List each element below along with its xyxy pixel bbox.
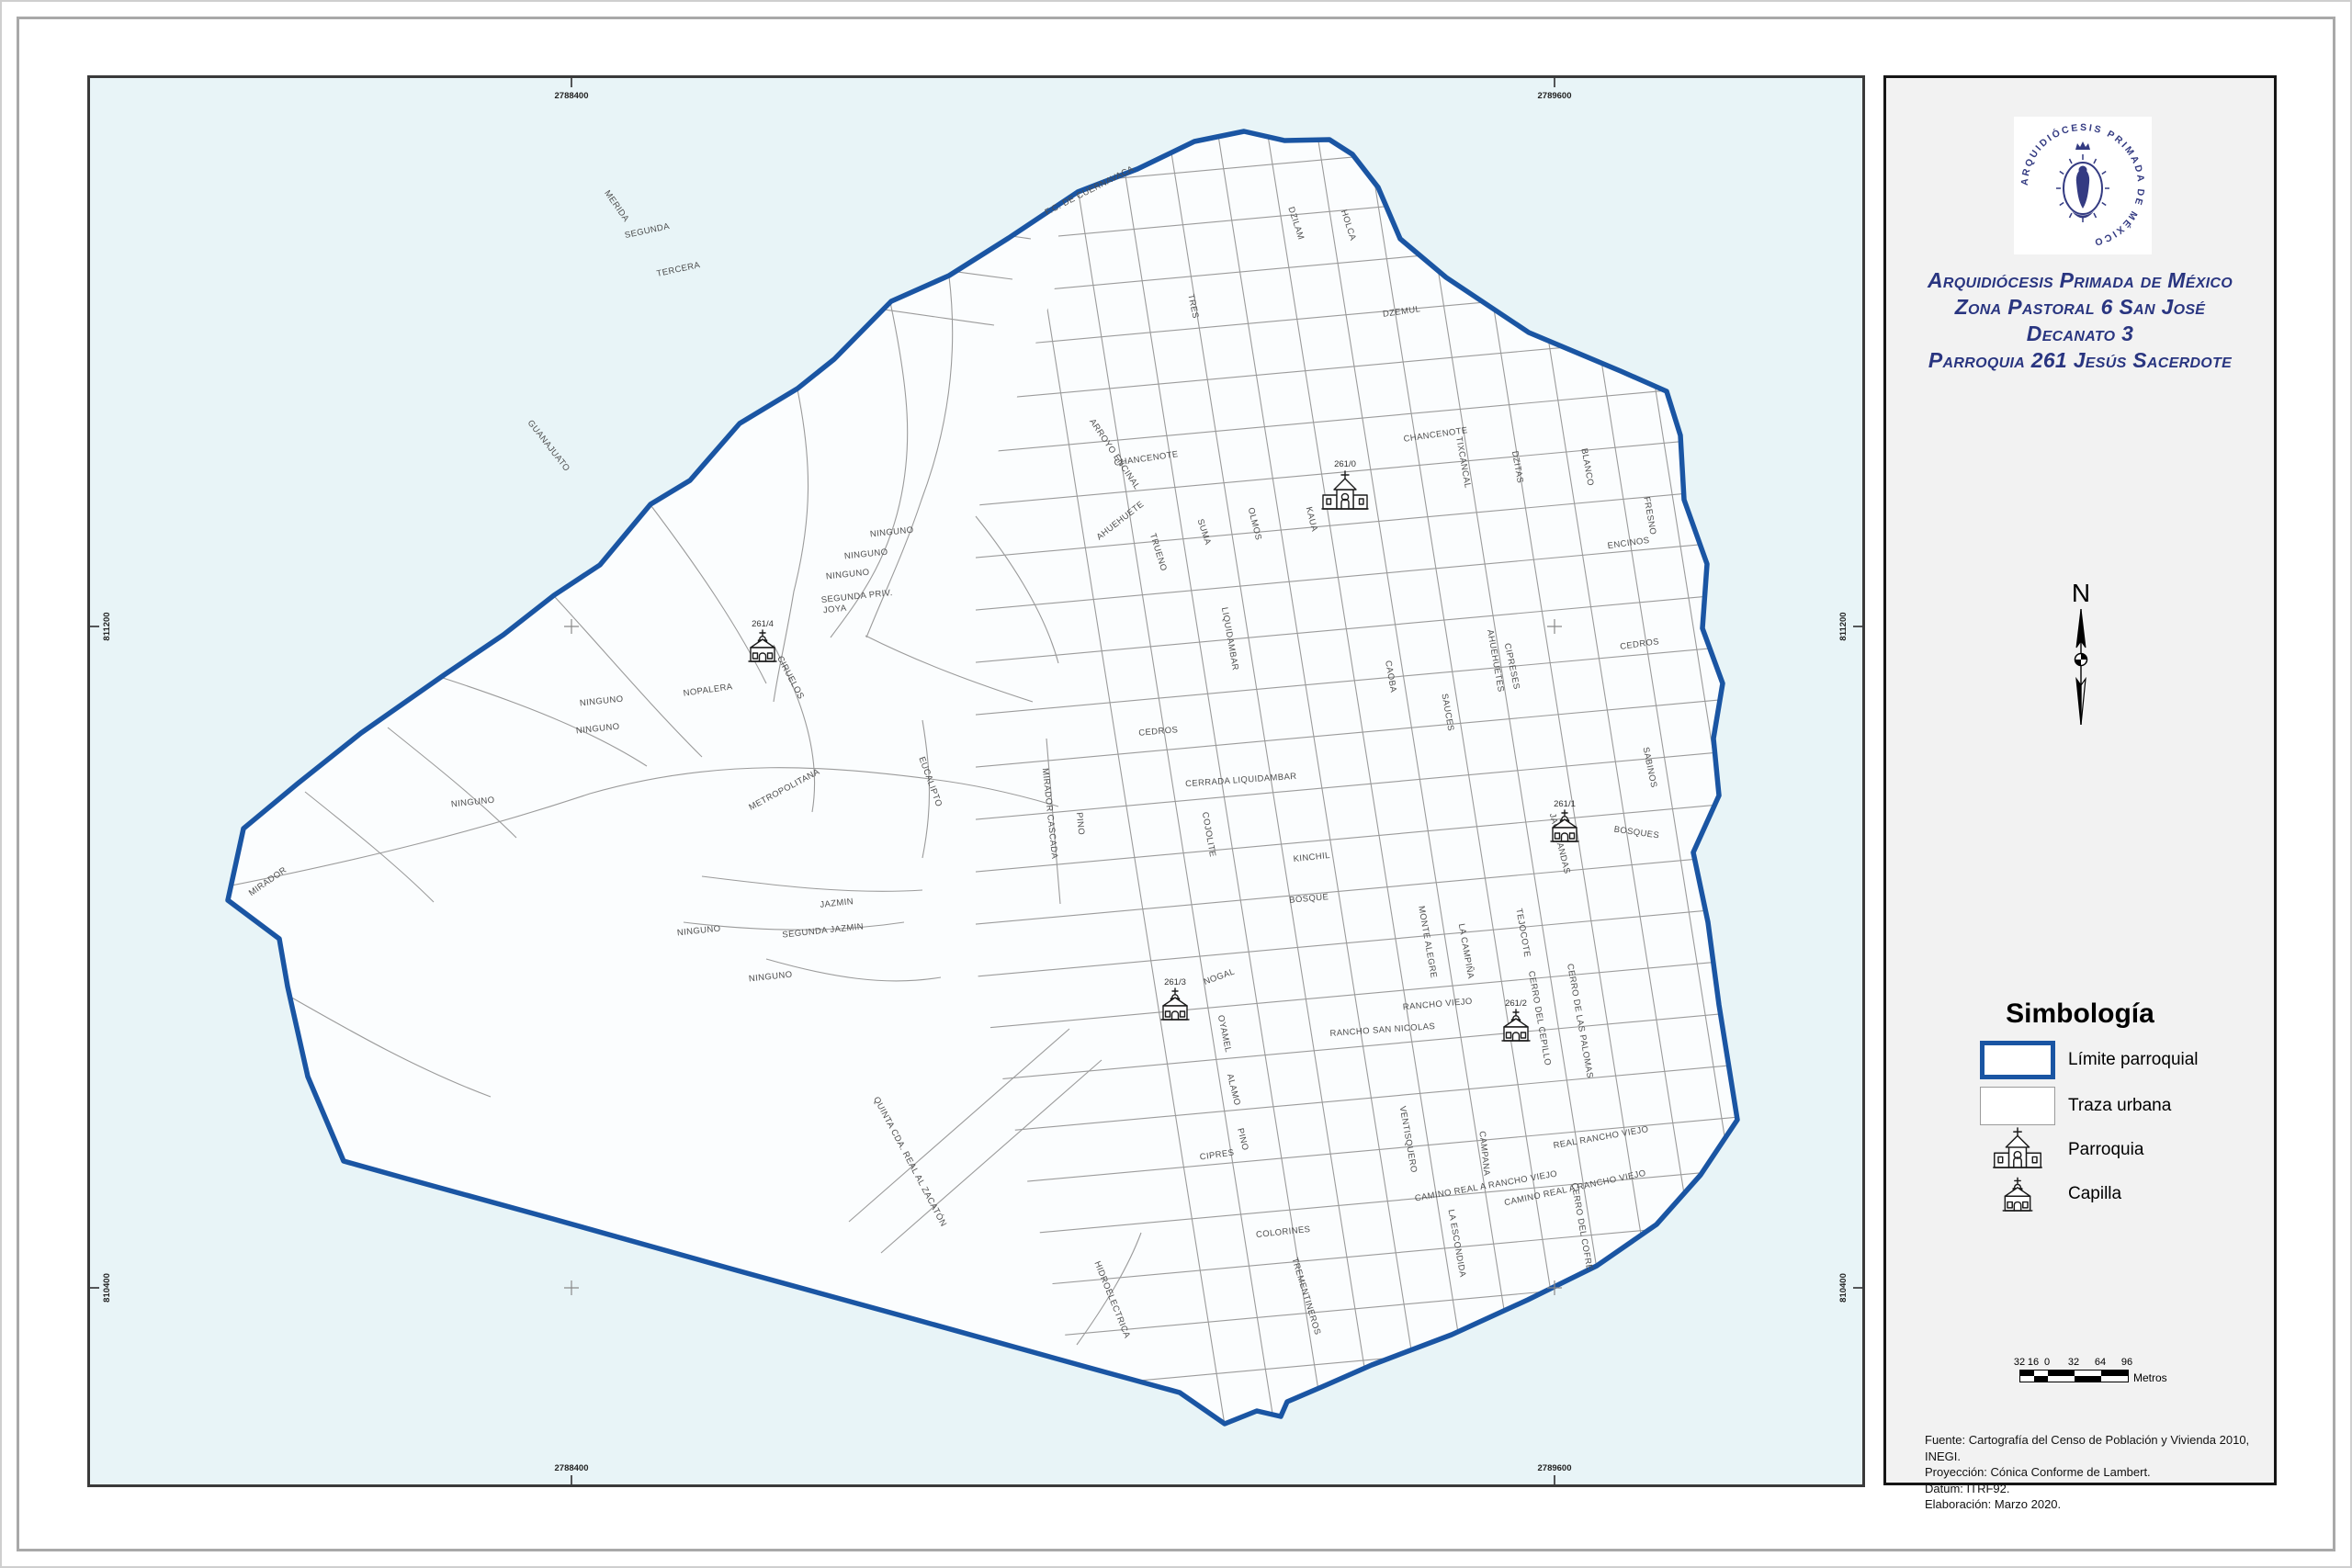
- parroquia-icon: [1990, 1127, 2045, 1173]
- church-id-label: 261/3: [1164, 977, 1186, 987]
- title-line: Zona Pastoral 6 San José: [1894, 294, 2267, 321]
- legend-item-capilla: Capilla: [1978, 1173, 2272, 1215]
- coordinate-label: 811200: [1838, 612, 1849, 640]
- scale-bar: 32 16 0 32 64 96 Metros: [2019, 1357, 2240, 1382]
- capilla-icon: [1990, 1173, 2045, 1215]
- coordinate-label: 2789600: [1538, 91, 1572, 101]
- church-id-label: 261/1: [1554, 799, 1576, 809]
- scale-tick: 64: [2095, 1357, 2106, 1368]
- seal-icon: ARQUIDIÓCESIS PRIMADA DE MÉXICO: [2014, 117, 2152, 254]
- legend-item-limite: Límite parroquial: [1978, 1039, 2272, 1081]
- church-id-label: 261/2: [1505, 998, 1527, 1009]
- coordinate-label: 2788400: [555, 91, 589, 101]
- map-canvas: F.C. DE CUERNAVACASEGUNDATERCERAMERIDATR…: [90, 78, 1862, 1484]
- coordinate-label: 810400: [102, 1273, 112, 1303]
- credit-line: Proyección: Cónica Conforme de Lambert.: [1925, 1464, 2274, 1481]
- legend-item-traza: Traza urbana: [1978, 1085, 2272, 1127]
- scale-tick: 32: [2068, 1357, 2079, 1368]
- church-id-label: 261/4: [752, 619, 774, 629]
- coordinate-label: 2789600: [1538, 1463, 1572, 1473]
- legend-item-label: Parroquia: [2068, 1140, 2143, 1160]
- archdiocese-seal: ARQUIDIÓCESIS PRIMADA DE MÉXICO: [2014, 117, 2152, 254]
- seal-crown: [2075, 141, 2090, 150]
- scale-bar-graphic: [2019, 1370, 2129, 1382]
- legend-item-parroquia: Parroquia: [1978, 1129, 2272, 1171]
- credit-line: Fuente: Cartografía del Censo de Poblaci…: [1925, 1432, 2274, 1464]
- title-line: Arquidiócesis Primada de México: [1894, 267, 2267, 294]
- church-id-label: 261/0: [1334, 459, 1356, 469]
- legend-item-label: Traza urbana: [2068, 1096, 2171, 1116]
- coordinate-label: 2788400: [555, 1463, 589, 1473]
- credits: Fuente: Cartografía del Censo de Poblaci…: [1925, 1432, 2274, 1513]
- traza-urbana-swatch: [1980, 1087, 2055, 1125]
- legend-item-label: Límite parroquial: [2068, 1050, 2199, 1070]
- credit-line: Elaboración: Marzo 2020.: [1925, 1496, 2274, 1513]
- north-needle-icon: [2070, 607, 2092, 728]
- scale-tick: 0: [2044, 1357, 2050, 1368]
- scale-tick: 16: [2028, 1357, 2039, 1368]
- scale-unit: Metros: [2133, 1371, 2167, 1384]
- map-box: F.C. DE CUERNAVACASEGUNDATERCERAMERIDATR…: [87, 75, 1865, 1487]
- coordinate-label: 811200: [102, 612, 112, 640]
- map-title: Arquidiócesis Primada de México Zona Pas…: [1894, 267, 2267, 374]
- legend-item-label: Capilla: [2068, 1184, 2121, 1204]
- scale-tick: 32: [2014, 1357, 2025, 1368]
- scale-numbers: 32 16 0 32 64 96: [2019, 1357, 2240, 1369]
- scale-tick: 96: [2121, 1357, 2132, 1368]
- seal-virgin-figure: [2076, 168, 2089, 209]
- coordinate-label: 810400: [1838, 1273, 1849, 1303]
- title-line: Decanato 3: [1894, 321, 2267, 347]
- credit-line: Datum: ITRF92.: [1925, 1481, 2274, 1497]
- parish-map-sheet: { "panel": { "seal_text": "ARQUIDIÓCESIS…: [0, 0, 2352, 1568]
- north-arrow: N: [2037, 580, 2125, 733]
- north-label: N: [2037, 580, 2125, 607]
- limite-parroquial-swatch: [1980, 1041, 2055, 1079]
- title-line: Parroquia 261 Jesús Sacerdote: [1894, 347, 2267, 374]
- legend-heading: Simbología: [1886, 998, 2274, 1030]
- info-panel: ARQUIDIÓCESIS PRIMADA DE MÉXICO Arquidió…: [1883, 75, 2277, 1485]
